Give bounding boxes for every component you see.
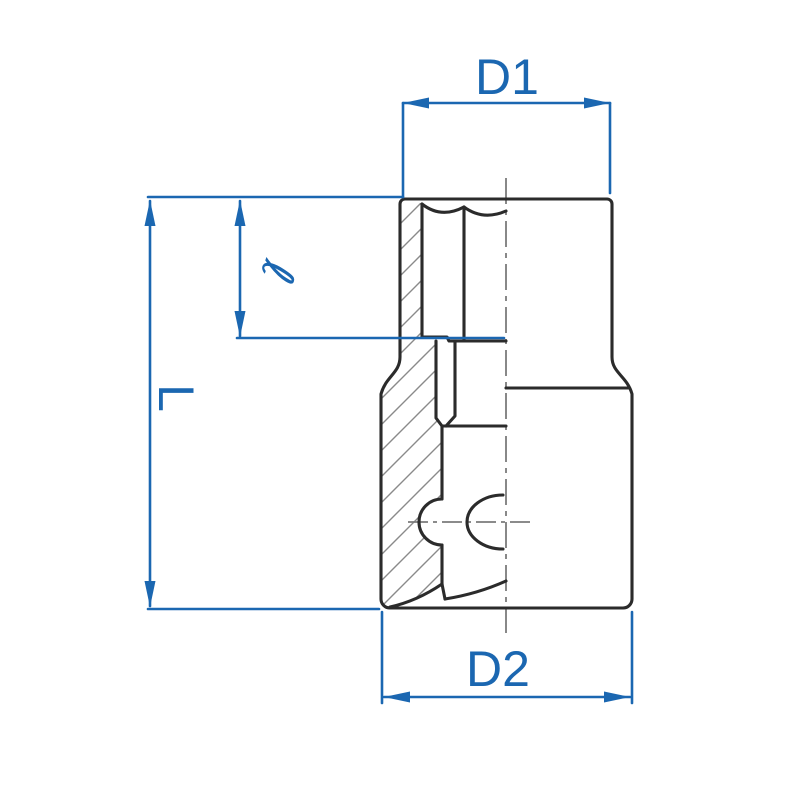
socket-drawing-svg: D1 D2 L ℓ	[0, 0, 800, 800]
l-label: L	[148, 384, 204, 412]
drawing-canvas: D1 D2 L ℓ	[0, 0, 800, 800]
d2-label: D2	[466, 641, 530, 697]
d1-label: D1	[475, 49, 539, 105]
